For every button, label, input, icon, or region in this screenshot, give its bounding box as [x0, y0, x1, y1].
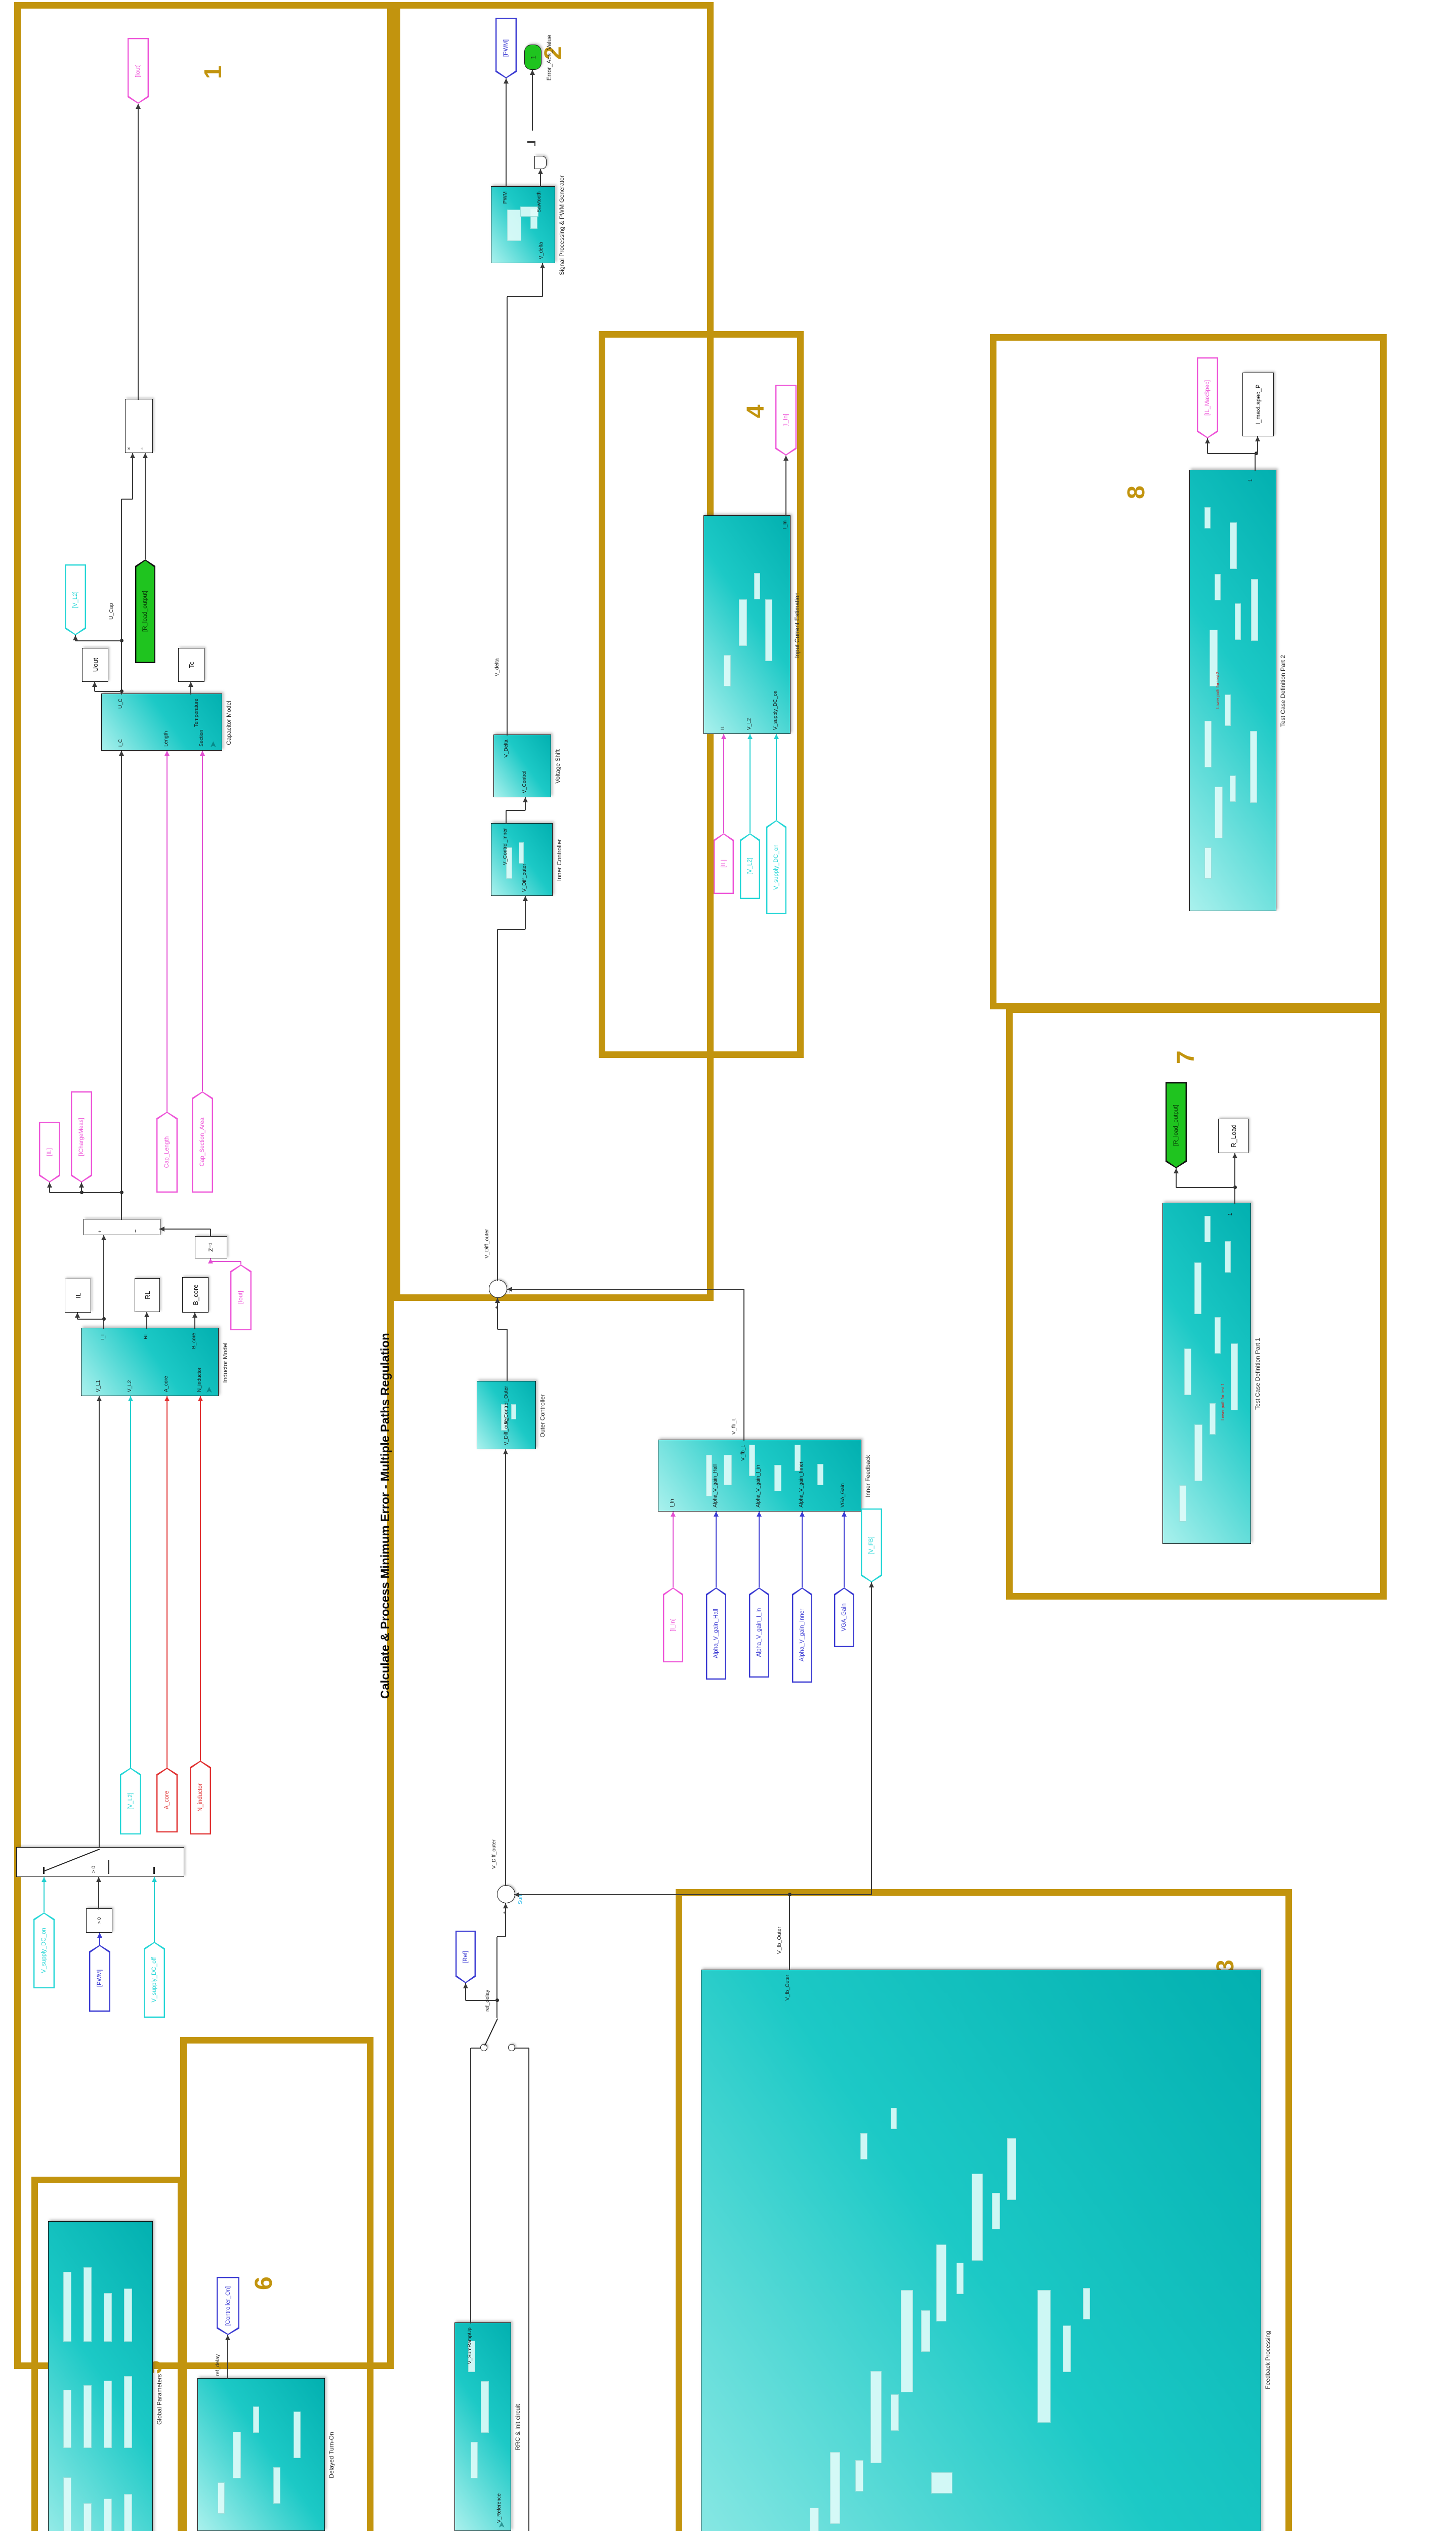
- rl-display[interactable]: RL: [135, 1278, 160, 1312]
- from-tag-n-inductor[interactable]: N_inductor: [190, 1761, 211, 1834]
- wire-segment: [723, 734, 724, 833]
- wire-label: V_fb_L: [731, 1418, 737, 1435]
- wire-arrowhead: [671, 1512, 676, 1517]
- wire-arrowhead: [757, 1512, 762, 1517]
- wire-segment: [1176, 1187, 1235, 1188]
- port-label: VGA_Gain: [840, 1483, 846, 1507]
- switch-contact: [153, 1867, 155, 1874]
- port-label: N_inductor: [197, 1368, 202, 1392]
- wire-label: ref_delay: [484, 1990, 490, 2012]
- wire-segment: [1234, 1153, 1235, 1188]
- wire-segment: [466, 2000, 497, 2001]
- wire-segment: [496, 1937, 497, 2018]
- wire-segment: [514, 2048, 529, 2049]
- subsystem-mini-block: [63, 2477, 71, 2531]
- section-number-7: 7: [1174, 1050, 1198, 1064]
- subsystem-mini-block: [273, 2467, 280, 2504]
- wire-segment: [505, 1449, 506, 1886]
- subsystem-mini-block: [1204, 847, 1212, 879]
- goto-tag-iout[interactable]: [Iout]: [128, 38, 149, 104]
- port-label: I_L: [100, 1333, 106, 1340]
- port-label: A_core: [163, 1376, 169, 1392]
- subsystem-mini-block: [481, 2381, 489, 2433]
- goto-tag-ref[interactable]: [Ref]: [455, 1931, 476, 1983]
- goto-tag-il[interactable]: [IL]: [39, 1122, 60, 1182]
- tag-label: V_supply_DC_on: [766, 820, 786, 914]
- from-tag-cap-length[interactable]: Cap_Length: [156, 1112, 178, 1193]
- subsystem-mini-block: [774, 1465, 781, 1491]
- subsystem-mini-block: [294, 2412, 301, 2458]
- port-label: I_In: [782, 520, 788, 529]
- port-label: Alpha_V_gain_I_in: [756, 1465, 761, 1507]
- section-number-6: 6: [252, 2276, 276, 2290]
- tag-label: V_supply_DC_on: [33, 1912, 55, 1988]
- subsystem-mini-block: [754, 573, 760, 599]
- block-label: Test Case Definition Part 2: [1279, 655, 1286, 727]
- wire-segment: [210, 1229, 211, 1237]
- block-label: Test Case Definition Part 1: [1254, 1338, 1261, 1410]
- wire-segment: [470, 2048, 471, 2323]
- block-label: Global Parameters: [156, 2374, 163, 2425]
- subsystem-mini-block: [1250, 731, 1257, 803]
- wire-label: V_delta: [494, 658, 500, 676]
- tag-label: [PWM]: [89, 1945, 110, 2012]
- tag-label: [R_load_output]: [135, 559, 155, 663]
- tag-label: [R_load_output]: [1166, 1082, 1187, 1168]
- tag-label: [Iout]: [128, 38, 149, 104]
- block-label: Signal Processing & PWM Generator: [558, 175, 565, 275]
- wire-segment: [1234, 1188, 1235, 1204]
- wire-arrowhead: [119, 751, 124, 756]
- subsystem-mini-block: [891, 2394, 899, 2431]
- port-label: Section: [199, 730, 204, 747]
- wire-arrowhead: [144, 1312, 149, 1317]
- port-label: V_Control_Outer: [504, 1386, 509, 1424]
- wire-arrowhead: [152, 1877, 157, 1882]
- goto-tag-r-load-output[interactable]: [R_load_output]: [1166, 1082, 1187, 1168]
- operator-sign: ÷: [140, 447, 145, 451]
- wire-segment: [528, 2048, 529, 2531]
- port-label: Length: [163, 731, 169, 747]
- tag-label: Alpha_V_gain_Hall: [706, 1587, 726, 1680]
- wire-segment: [44, 1877, 45, 1912]
- from-tag-il-4[interactable]: [IL]: [714, 833, 734, 894]
- il-display[interactable]: IL: [65, 1279, 91, 1313]
- wire-arrowhead: [96, 1877, 101, 1882]
- subsystem-mini-block: [1083, 2288, 1090, 2319]
- subsystem-mini-block: [1215, 787, 1223, 838]
- port-label: V_supply_DC_on: [773, 690, 778, 730]
- goto-tag-il-maxspec[interactable]: [IL_MaxSpec]: [1197, 357, 1218, 438]
- port-label: 1: [1248, 479, 1254, 482]
- tag-label: [I_In]: [775, 385, 797, 456]
- signal-processing-pwm-generator-block[interactable]: [491, 186, 555, 263]
- subsystem-mini-block: [810, 2508, 819, 2531]
- wire-segment: [200, 1396, 201, 1761]
- wire-arrowhead: [540, 263, 545, 268]
- unit-delay-block[interactable]: Z⁻¹: [195, 1236, 227, 1258]
- wire-segment: [497, 929, 498, 1281]
- wire-segment: [159, 1229, 211, 1230]
- simulink-canvas: 12345678Calculate & Process Minimum Erro…: [0, 0, 1456, 2531]
- subsystem-mini-block: [124, 2376, 132, 2448]
- tag-label: [Controller_On]: [217, 2277, 239, 2335]
- wire-arrowhead: [75, 1313, 80, 1318]
- block-label: RRC & Init circuit: [514, 2404, 521, 2450]
- block-label: Inner Feedback: [864, 1455, 871, 1497]
- goto-tag-icharge-meas[interactable]: [IChargeMeas]: [71, 1091, 92, 1182]
- wire-arrowhead: [800, 1512, 805, 1517]
- terminator[interactable]: [534, 156, 547, 169]
- goto-tag-i-in[interactable]: [I_In]: [775, 385, 797, 456]
- wire-arrowhead: [523, 797, 528, 802]
- port-label: U_C: [118, 699, 123, 709]
- outport-error-abs-value[interactable]: 1: [524, 45, 542, 70]
- goto-tag-v-l2[interactable]: [V_L2]: [65, 564, 86, 635]
- wire-segment: [514, 1894, 789, 1895]
- wire-segment: [789, 1894, 871, 1895]
- wire-segment: [497, 929, 525, 930]
- wire-stub: [534, 141, 535, 146]
- from-tag-v-supply-dc-off[interactable]: V_supply_DC_off: [144, 1942, 165, 2018]
- port-label: V_Delta: [504, 740, 509, 758]
- subsystem-annotation: Lower path for test 2: [1216, 672, 1220, 709]
- wire-arrowhead: [47, 1182, 52, 1188]
- subsystem-mini-block: [921, 2310, 930, 2352]
- wire-segment: [844, 1512, 845, 1587]
- wire-segment: [167, 1396, 168, 1768]
- from-tag-v-l2-4[interactable]: [V_L2]: [740, 833, 760, 899]
- wire-arrowhead: [97, 1396, 102, 1401]
- wire-segment: [227, 2335, 228, 2379]
- subsystem-annotation: Lower path for test 1: [1221, 1383, 1225, 1420]
- switch-threshold-line: [108, 1860, 109, 1874]
- wire-segment: [202, 751, 203, 1091]
- from-tag-v-supply-dc-on-4[interactable]: V_supply_DC_on: [766, 820, 786, 914]
- wire-arrowhead: [225, 2335, 230, 2340]
- port-label: V_delta: [538, 242, 544, 259]
- wire-arrowhead: [747, 734, 753, 739]
- wire-label: V_Diff_outer: [484, 1229, 490, 1258]
- subsystem-mini-block: [992, 2193, 1000, 2229]
- wire-label: V_Diff_outer: [491, 1840, 497, 1869]
- subsystem-mini-block: [1210, 1403, 1216, 1435]
- subsystem-mini-block: [520, 207, 538, 217]
- subtract-block[interactable]: [84, 1219, 160, 1235]
- wire-segment: [471, 2048, 480, 2049]
- block-label: Inner Controller: [556, 839, 563, 881]
- subsystem-mini-block: [1235, 603, 1241, 640]
- subsystem-mini-block: [901, 2290, 913, 2392]
- tag-label: [IL]: [39, 1122, 60, 1182]
- subsystem-mini-block: [124, 2494, 132, 2531]
- wire-segment: [750, 734, 751, 833]
- subsystem-mini-block: [749, 1445, 755, 1476]
- from-tag-v-l2[interactable]: [V_L2]: [120, 1768, 141, 1834]
- wire-label: ref_delay: [215, 2354, 221, 2376]
- subsystem-mini-block: [855, 2460, 863, 2492]
- wire-arrowhead: [514, 1892, 519, 1897]
- delayed-turn-on-block[interactable]: [197, 2378, 325, 2531]
- wire-arrowhead: [1205, 438, 1210, 443]
- tag-label: VGA_Gain: [834, 1587, 854, 1647]
- block-label: Inductor Model: [222, 1342, 229, 1382]
- tag-label: A_core: [156, 1768, 178, 1832]
- wire-segment: [99, 1396, 100, 1848]
- wire-arrowhead: [188, 682, 193, 687]
- wire-arrowhead: [1232, 1153, 1237, 1158]
- port-label: V_Reference: [496, 2494, 502, 2523]
- subsystem-mini-block: [84, 2267, 92, 2342]
- from-tag-cap-section-area[interactable]: Cap_Section_Area: [192, 1091, 213, 1193]
- subsystem-mini-block: [1231, 1343, 1238, 1410]
- wire-arrowhead: [495, 1298, 500, 1303]
- wire-segment: [103, 1235, 104, 1329]
- subsystem-mini-block: [507, 210, 521, 241]
- outport-label: Error_Abs_Value: [546, 35, 553, 81]
- tag-label: Cap_Length: [156, 1112, 178, 1193]
- subsystem-mini-block: [471, 2442, 478, 2478]
- wire-segment: [497, 1329, 507, 1330]
- subsystem-arrow-icon: ➤: [204, 1386, 214, 1393]
- subsystem-mini-block: [1194, 1424, 1202, 1481]
- port-label: Alpha_V_gain_Inner: [799, 1461, 804, 1507]
- subsystem-mini-block: [931, 2472, 952, 2494]
- from-tag-v-supply-dc-on[interactable]: V_supply_DC_on: [33, 1912, 55, 1988]
- wire-label: V_fb_Outer: [776, 1927, 782, 1954]
- wire-segment: [532, 70, 533, 131]
- wire-arrowhead: [159, 1227, 164, 1232]
- wire-segment: [95, 691, 121, 692]
- subsystem-mini-block: [84, 2385, 92, 2448]
- wire-arrowhead: [530, 70, 535, 75]
- subsystem-mini-block: [519, 842, 524, 864]
- port-label: Alpha_V_gain_Hall: [713, 1464, 718, 1507]
- wire-arrowhead: [1255, 436, 1260, 441]
- wire-arrowhead: [130, 453, 135, 458]
- from-tag-i-in[interactable]: [I_In]: [663, 1587, 683, 1662]
- subsystem-mini-block: [124, 2289, 132, 2342]
- wire-segment: [132, 453, 133, 499]
- supply-switch[interactable]: [16, 1847, 184, 1877]
- wire-arrowhead: [192, 1313, 197, 1318]
- wire-arrowhead: [538, 169, 543, 174]
- tc-display[interactable]: Tc: [178, 648, 204, 682]
- subsystem-mini-block: [104, 2293, 112, 2342]
- subsystem-mini-block: [739, 599, 747, 646]
- subsystem-mini-block: [724, 1455, 732, 1485]
- port-label: V_Control_Inner: [503, 828, 508, 865]
- subsystem-mini-block: [1230, 775, 1236, 802]
- uout-display[interactable]: Uout: [82, 648, 108, 682]
- from-tag-iout[interactable]: [Iout]: [230, 1264, 252, 1330]
- diagram-title: Calculate & Process Minimum Error - Mult…: [379, 1333, 393, 1699]
- wire-arrowhead: [198, 1396, 203, 1401]
- tag-label: [V_L2]: [740, 833, 760, 899]
- section-number-1: 1: [201, 65, 226, 79]
- subsystem-mini-block: [1007, 2138, 1016, 2200]
- wire-segment: [871, 1582, 872, 1895]
- subsystem-mini-block: [1204, 507, 1211, 528]
- wire-arrowhead: [774, 734, 779, 739]
- block-label: Capacitor Model: [225, 701, 232, 745]
- port-label: RL: [143, 1333, 149, 1339]
- from-tag-a-core[interactable]: A_core: [156, 1768, 178, 1832]
- port-label: 1: [1228, 1213, 1233, 1216]
- wire-arrowhead: [523, 896, 528, 901]
- subsystem-mini-block: [1184, 1349, 1191, 1395]
- operator-sign: > 0: [91, 1866, 97, 1873]
- wire-segment: [50, 1192, 121, 1193]
- wire-arrowhead: [79, 1182, 84, 1188]
- wire-arrowhead: [200, 751, 205, 756]
- wire-segment: [507, 296, 543, 297]
- goto-tag-controller-on[interactable]: [Controller_On]: [217, 2277, 239, 2335]
- section-number-4: 4: [744, 404, 768, 418]
- wire-segment: [716, 1512, 717, 1587]
- manual-switch-lever: [484, 2018, 498, 2046]
- subsystem-mini-block: [1179, 1485, 1186, 1522]
- wire-arrowhead: [136, 104, 141, 109]
- tag-label: [V_L2]: [65, 564, 86, 635]
- i-maxlspec-p-display[interactable]: I_maxLspec_P: [1242, 373, 1274, 436]
- wire-arrowhead: [101, 1235, 106, 1240]
- port-label: I_In: [670, 1499, 675, 1507]
- subsystem-mini-block: [1204, 1216, 1211, 1242]
- subsystem-mini-block: [253, 2406, 259, 2433]
- sum-junction-inner[interactable]: [489, 1280, 507, 1298]
- wire-arrowhead: [1174, 1168, 1179, 1173]
- block-label: Outer Controller: [539, 1394, 546, 1437]
- wire-label: U_Cap: [108, 603, 114, 620]
- from-tag-alpha-v-gain-inner[interactable]: Alpha_V_gain_Inner: [792, 1587, 812, 1683]
- tag-label: V_supply_DC_off: [144, 1942, 165, 2018]
- wire-segment: [507, 1329, 508, 1382]
- wire-arrowhead: [503, 1903, 508, 1908]
- port-label: V_Diff_outer: [522, 864, 527, 892]
- wire-arrowhead: [842, 1512, 847, 1517]
- wire-segment: [77, 1319, 104, 1320]
- operator-sign: ×: [127, 447, 132, 450]
- subsystem-mini-block: [936, 2244, 946, 2321]
- subsystem-mini-block: [63, 2390, 71, 2448]
- wire-segment: [506, 810, 525, 811]
- subsystem-mini-block: [1251, 579, 1258, 641]
- wire-segment: [802, 1512, 803, 1587]
- r-load-display[interactable]: R_Load: [1218, 1119, 1249, 1153]
- wire-arrowhead: [721, 734, 726, 739]
- section-number-8: 8: [1125, 485, 1149, 499]
- tag-label: [V_L2]: [120, 1768, 141, 1834]
- wire-arrowhead: [143, 453, 148, 458]
- subsystem-mini-block: [972, 2174, 983, 2261]
- port-label: V_L2: [127, 1380, 133, 1392]
- wire-segment: [673, 1512, 674, 1587]
- wire-segment: [211, 1261, 241, 1262]
- port-label: V_Control: [522, 771, 527, 793]
- wire-segment: [785, 456, 786, 516]
- subsystem-mini-block: [511, 1404, 516, 1419]
- goto-tag-pwm[interactable]: [PWM]: [495, 18, 517, 78]
- subsystem-mini-block: [830, 2452, 840, 2524]
- subsystem-mini-block: [1230, 522, 1237, 569]
- wire-segment: [743, 1289, 744, 1441]
- tag-label: [Ref]: [455, 1931, 476, 1983]
- from-tag-pwm[interactable]: [PWM]: [89, 1945, 110, 2012]
- from-tag-r-load-output[interactable]: [R_load_output]: [135, 559, 155, 663]
- from-tag-alpha-v-gain-i-in[interactable]: Alpha_V_gain_I_in: [749, 1587, 769, 1678]
- wire-segment: [75, 640, 121, 641]
- wire-segment: [776, 734, 777, 820]
- wire-arrowhead: [92, 682, 97, 687]
- subsystem-mini-block: [1215, 1317, 1221, 1354]
- block-label: Delayed Turn-On: [328, 2432, 335, 2478]
- b-core-display[interactable]: B_core: [182, 1277, 209, 1313]
- wire-segment: [506, 810, 507, 824]
- subsystem-mini-block: [104, 2381, 112, 2448]
- subsystem-mini-block: [1225, 1241, 1231, 1273]
- wire-arrowhead: [503, 1449, 508, 1454]
- sum-junction-outer[interactable]: [497, 1885, 515, 1903]
- gold-box-8: [990, 334, 1387, 1009]
- tag-label: [IL]: [714, 833, 734, 894]
- wire-arrowhead: [783, 456, 788, 461]
- from-tag-vga-gain[interactable]: VGA_Gain: [834, 1587, 854, 1647]
- subsystem-mini-block: [218, 2482, 225, 2514]
- subsystem-mini-block: [817, 1464, 823, 1485]
- subsystem-mini-block: [1063, 2325, 1071, 2372]
- compare-gt-zero-block[interactable]: > 0: [86, 1908, 112, 1933]
- wire-segment: [121, 751, 122, 1220]
- tag-label: Cap_Section_Area: [192, 1091, 213, 1193]
- wire-arrowhead: [164, 1396, 170, 1401]
- subsystem-mini-block: [765, 599, 772, 661]
- operator-sign: +: [97, 1230, 103, 1233]
- port-label: IL: [720, 726, 726, 730]
- tag-label: [IL_MaxSpec]: [1197, 357, 1218, 438]
- subsystem-mini-block: [233, 2432, 241, 2478]
- tag-label: Alpha_V_gain_Inner: [792, 1587, 812, 1683]
- wire-segment: [1255, 454, 1256, 471]
- port-label: Temperature: [194, 699, 199, 727]
- from-tag-alpha-v-gain-hall[interactable]: Alpha_V_gain_Hall: [706, 1587, 726, 1680]
- subsystem-mini-block: [724, 655, 731, 686]
- tag-label: [Iout]: [230, 1264, 252, 1330]
- wire-segment: [167, 751, 168, 1112]
- block-label: Input Current Estimation: [794, 592, 801, 658]
- goto-tag-v-fb[interactable]: [V_FB]: [861, 1508, 882, 1582]
- port-label: V_L1: [96, 1380, 101, 1392]
- tag-label: N_inductor: [190, 1761, 211, 1834]
- subsystem-mini-block: [1215, 574, 1221, 600]
- wire-segment: [1208, 453, 1255, 454]
- tag-label: [V_FB]: [861, 1508, 882, 1582]
- port-label: B_core: [191, 1333, 197, 1349]
- wire-segment: [130, 1396, 131, 1768]
- subsystem-mini-block: [870, 2371, 882, 2463]
- wire-segment: [507, 1289, 744, 1290]
- block-label: Voltage Shift: [554, 749, 561, 783]
- port-label: Sawtooth: [536, 191, 542, 213]
- subsystem-mini-block: [706, 1455, 712, 1496]
- wire-arrowhead: [41, 1877, 47, 1882]
- port-label: i_C: [118, 739, 123, 747]
- block-label: Feedback Processing: [1264, 2331, 1271, 2389]
- divide-block[interactable]: [125, 399, 153, 453]
- port-label: V_fb_L: [740, 1445, 746, 1461]
- wire-segment: [121, 499, 122, 695]
- tag-label: Alpha_V_gain_I_in: [749, 1587, 769, 1678]
